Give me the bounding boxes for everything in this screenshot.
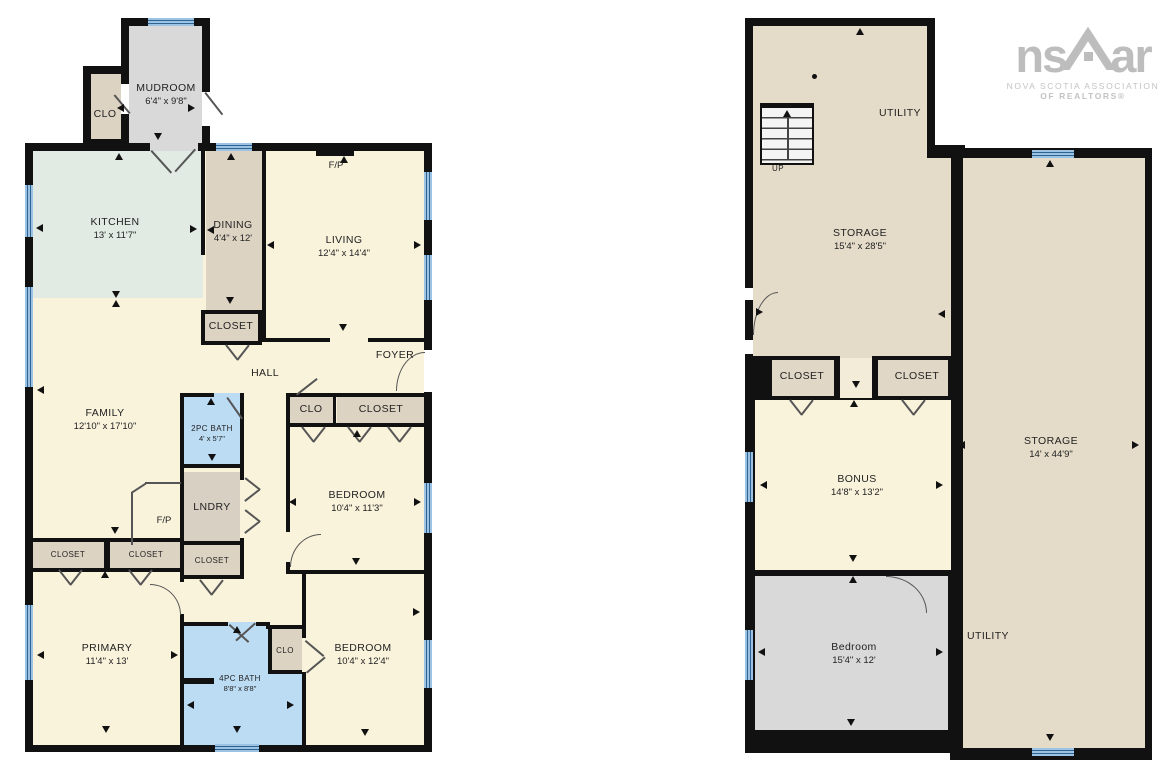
room-dims: 15'4" x 28'5" <box>833 241 887 253</box>
wall <box>878 356 951 360</box>
staircase <box>760 103 814 165</box>
dim-arrow <box>1046 734 1054 741</box>
room-name: STORAGE <box>1024 435 1078 449</box>
dim-arrow <box>1132 441 1139 449</box>
window <box>745 452 753 502</box>
wall <box>745 356 772 400</box>
wall <box>872 356 878 400</box>
nsar-logo-wordmark: ns ar <box>998 24 1168 75</box>
logo-text-ar: ar <box>1110 37 1150 75</box>
room-name: UTILITY <box>967 630 1009 644</box>
dim-arrow <box>1046 160 1054 167</box>
door-opening <box>745 340 753 354</box>
logo-subtitle-line1: NOVA SCOTIA ASSOCIATION <box>998 81 1168 91</box>
floor-plan-page: MUDROOM 6'4" x 9'8" CLO KITCHEN 13' x 11… <box>0 0 1174 778</box>
label-up: UP <box>772 164 784 174</box>
wall <box>834 356 840 400</box>
room-name: CLOSET <box>780 370 824 384</box>
wall <box>755 356 840 360</box>
room-label-storage1: STORAGE 15'4" x 28'5" <box>833 227 887 253</box>
dim-arrow <box>852 381 860 388</box>
window <box>1032 150 1074 158</box>
closet-door <box>898 400 928 416</box>
dim-arrow <box>936 648 943 656</box>
room-label-storage2: STORAGE 14' x 44'9" <box>1024 435 1078 461</box>
dim-arrow <box>958 441 965 449</box>
room-dims: 15'4" x 12' <box>831 655 876 667</box>
floor-plan-basement: UTILITY UP STORAGE 15'4" x 28'5" CLOSET … <box>0 0 1174 778</box>
wall <box>927 570 951 576</box>
dim-arrow <box>847 719 855 726</box>
room-dims: 14'8" x 13'2" <box>831 487 883 499</box>
room-label-utility-basement: UTILITY <box>967 630 1009 644</box>
dim-arrow <box>760 481 767 489</box>
room-label-closet-right: CLOSET <box>895 370 939 384</box>
dim-arrow <box>758 648 765 656</box>
wall <box>755 570 885 576</box>
dim-arrow <box>856 28 864 35</box>
logo-text-ns: ns <box>1015 37 1066 75</box>
support-post <box>812 74 817 79</box>
house-icon <box>1062 24 1114 73</box>
dim-arrow <box>849 555 857 562</box>
door-opening <box>745 288 753 300</box>
stairs-up-label: UP <box>772 164 784 174</box>
door-opening <box>840 358 872 398</box>
dim-arrow <box>936 481 943 489</box>
room-label-bonus: BONUS 14'8" x 13'2" <box>831 473 883 499</box>
room-label-bedroom-basement: Bedroom 15'4" x 12' <box>831 641 876 667</box>
logo-subtitle-line2: OF REALTORS® <box>998 91 1168 101</box>
room-name: UTILITY <box>879 107 921 121</box>
dim-arrow <box>938 310 945 318</box>
room-storage-utility <box>753 26 927 358</box>
window <box>745 630 753 680</box>
room-storage-utility <box>927 158 951 358</box>
stair-arrow-line <box>787 113 789 159</box>
dim-arrow <box>849 576 857 583</box>
closet-door <box>786 400 816 416</box>
room-name: CLOSET <box>895 370 939 384</box>
room-name: STORAGE <box>833 227 887 241</box>
dim-arrow <box>756 308 763 316</box>
room-label-utility-top: UTILITY <box>879 107 921 121</box>
stair-arrow-up <box>783 110 791 117</box>
room-name: BONUS <box>831 473 883 487</box>
room-label-closet-left: CLOSET <box>780 370 824 384</box>
nsar-logo: ns ar NOVA SCOTIA ASSOCIATION OF REALTOR… <box>998 24 1168 101</box>
room-name: Bedroom <box>831 641 876 655</box>
dim-arrow <box>850 400 858 407</box>
room-dims: 14' x 44'9" <box>1024 449 1078 461</box>
window <box>1032 748 1074 756</box>
